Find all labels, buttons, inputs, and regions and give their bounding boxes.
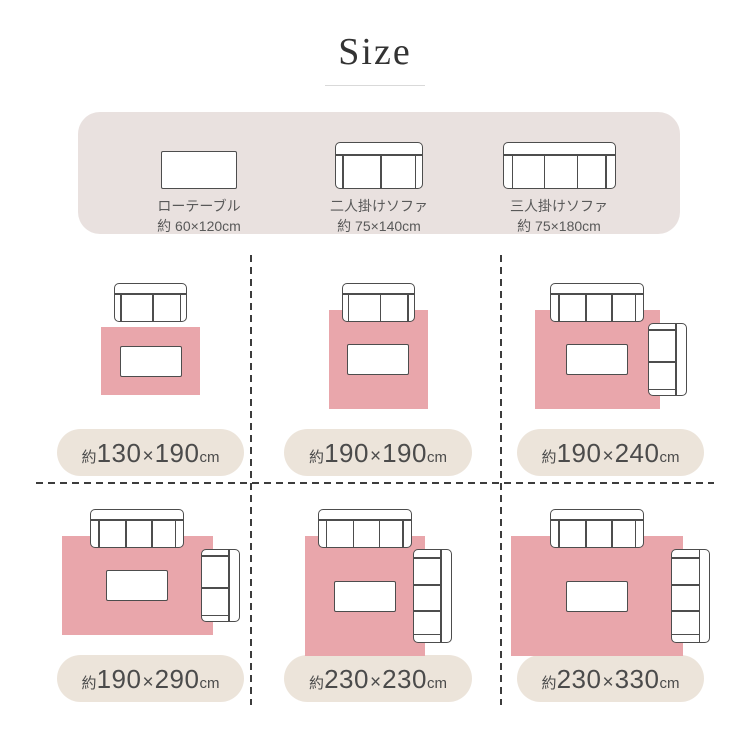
sofa-seam-line [699,550,701,642]
sofa-seam-line [202,555,229,557]
rug-composition [305,509,452,656]
sofa-seam-line [440,550,442,642]
sofa-seam-line [348,293,350,321]
page-header: Size [0,0,750,86]
rug-size-grid: 約130×190cm 約190×190cm 約190×240cm 約190×29… [0,255,750,707]
rug-composition [329,283,428,409]
size-label: 約230×230cm [309,666,447,692]
approx-prefix: 約 [309,449,324,466]
size-cell: 約230×230cm [251,481,501,707]
sofa-seam-line [649,361,676,363]
sofa-seam-line [175,519,177,547]
sofa-seam-line [353,519,355,547]
legend-furniture-size: 約 75×140cm [337,216,421,236]
sofa-seam-line [605,154,607,188]
sofa-seam-line [202,615,229,617]
multiply-sign: × [142,672,153,693]
approx-prefix: 約 [82,449,97,466]
size-label: 約190×190cm [309,440,447,466]
size-cell: 約230×330cm [501,481,750,707]
vertical-dashed-divider [500,255,502,705]
horizontal-dashed-divider [36,482,714,484]
sofa-seam-line [414,610,441,612]
legend-icon-box [503,125,616,189]
vertical-dashed-divider [250,255,252,705]
sofa-seam-line [675,324,677,395]
size-label-pill: 約230×230cm [284,655,472,702]
legend-item: 二人掛けソファ 約 75×140cm [289,125,469,237]
sofa-seam-line [672,634,699,636]
low-table-icon [566,344,628,375]
dimension-width: 190 [382,438,427,468]
unit-cm: cm [427,449,447,466]
legend-furniture-size: 約 75×180cm [517,216,601,236]
multiply-sign: × [142,446,153,467]
unit-cm: cm [199,675,219,692]
legend-furniture-name: ローテーブル [157,196,240,216]
sofa-seam-line [544,154,546,188]
rug-composition [62,509,240,635]
unit-cm: cm [427,675,447,692]
sofa-seam-line [379,519,381,547]
size-cell: 約190×240cm [501,255,750,481]
dimension-depth: 190 [557,438,602,468]
legend-icon-box [161,125,237,189]
low-table-icon [566,581,628,612]
dimension-depth: 190 [324,438,369,468]
side-sofa-icon [201,549,240,622]
dimension-depth: 230 [557,664,602,694]
rug-layout-figure [511,481,710,655]
dimension-depth: 130 [97,438,142,468]
top-sofa-icon [342,283,415,322]
sofa-seam-line [125,519,127,547]
multiply-sign: × [370,446,381,467]
legend-icon-box [335,125,423,189]
multiply-sign: × [602,446,613,467]
sofa-seam-line [202,587,229,589]
sofa-seam-line [414,557,441,559]
sofa-seam-line [342,154,344,188]
low-table-icon [161,151,237,189]
title-underline [325,85,425,86]
sofa-seam-line [336,154,422,156]
top-sofa-icon [90,509,184,548]
sofa-seam-line [380,293,382,321]
furniture-legend: ローテーブル 約 60×120cm 二人掛けソファ 約 75×140cm 三人掛… [78,112,680,234]
sofa-seam-line [649,329,676,331]
sofa-seam-line [672,557,699,559]
sofa-seam-line [504,154,615,156]
sofa-seam-line [577,154,579,188]
rug-layout-figure [62,481,240,655]
sofa-seam-line [98,519,100,547]
low-table-icon [334,581,396,612]
dimension-width: 230 [382,664,427,694]
sofa-seam-line [115,293,186,295]
legend-item: 三人掛けソファ 約 75×180cm [469,125,649,237]
sofa-seam-line [649,389,676,391]
low-table-icon [120,346,182,377]
sofa-seam-line [585,293,587,321]
sofa-seam-line [326,519,328,547]
sofa-seam-line [512,154,514,188]
dimension-width: 330 [615,664,660,694]
rug-composition [511,509,710,656]
size-cell: 約190×190cm [251,255,501,481]
dimension-width: 190 [155,438,200,468]
sofa-seam-line [319,519,411,521]
sofa-seam-line [180,293,182,321]
approx-prefix: 約 [542,675,557,692]
rug-layout-figure [305,481,452,655]
sofa-seam-line [151,519,153,547]
rug-composition [535,283,687,409]
sofa-seam-line [635,293,637,321]
three-seater-sofa-icon [503,142,616,189]
unit-cm: cm [659,449,679,466]
top-sofa-icon [550,509,644,548]
multiply-sign: × [370,672,381,693]
sofa-seam-line [120,293,122,321]
size-cell: 約190×290cm [0,481,251,707]
approx-prefix: 約 [82,675,97,692]
rug-composition [101,283,200,395]
sofa-seam-line [611,519,613,547]
sofa-seam-line [585,519,587,547]
approx-prefix: 約 [542,449,557,466]
sofa-seam-line [611,293,613,321]
dimension-width: 290 [155,664,200,694]
legend-furniture-size: 約 60×120cm [157,216,241,236]
top-sofa-icon [318,509,412,548]
size-cell: 約130×190cm [0,255,251,481]
sofa-seam-line [558,293,560,321]
size-label: 約190×240cm [542,440,680,466]
sofa-seam-line [551,519,643,521]
sofa-seam-line [407,293,409,321]
page-title: Size [0,30,750,76]
sofa-seam-line [558,519,560,547]
side-sofa-icon [413,549,452,643]
sofa-seam-line [414,584,441,586]
size-label: 約130×190cm [82,440,220,466]
dimension-depth: 230 [324,664,369,694]
sofa-seam-line [635,519,637,547]
sofa-seam-line [91,519,183,521]
sofa-seam-line [228,550,230,621]
sofa-seam-line [415,154,417,188]
unit-cm: cm [199,449,219,466]
sofa-seam-line [672,610,699,612]
legend-furniture-name: 二人掛けソファ [330,196,428,216]
sofa-seam-line [414,634,441,636]
low-table-icon [106,570,168,601]
legend-item: ローテーブル 約 60×120cm [109,125,289,237]
rug-layout-figure [101,255,200,429]
size-label-pill: 約130×190cm [57,429,245,476]
size-label: 約190×290cm [82,666,220,692]
size-label-pill: 約190×290cm [57,655,245,702]
multiply-sign: × [602,672,613,693]
sofa-seam-line [402,519,404,547]
size-label-pill: 約190×240cm [517,429,705,476]
legend-furniture-name: 三人掛けソファ [510,196,608,216]
side-sofa-icon [671,549,710,643]
dimension-depth: 190 [97,664,142,694]
top-sofa-icon [550,283,644,322]
sofa-seam-line [152,293,154,321]
dimension-width: 240 [615,438,660,468]
rug-layout-figure [329,255,428,429]
size-label-pill: 約230×330cm [517,655,705,702]
sofa-seam-line [343,293,414,295]
two-seater-sofa-icon [335,142,423,189]
sofa-seam-line [380,154,382,188]
side-sofa-icon [648,323,687,396]
size-label: 約230×330cm [542,666,680,692]
low-table-icon [347,344,409,375]
approx-prefix: 約 [309,675,324,692]
unit-cm: cm [659,675,679,692]
sofa-seam-line [551,293,643,295]
top-sofa-icon [114,283,187,322]
rug-layout-figure [535,255,687,429]
size-label-pill: 約190×190cm [284,429,472,476]
sofa-seam-line [672,584,699,586]
